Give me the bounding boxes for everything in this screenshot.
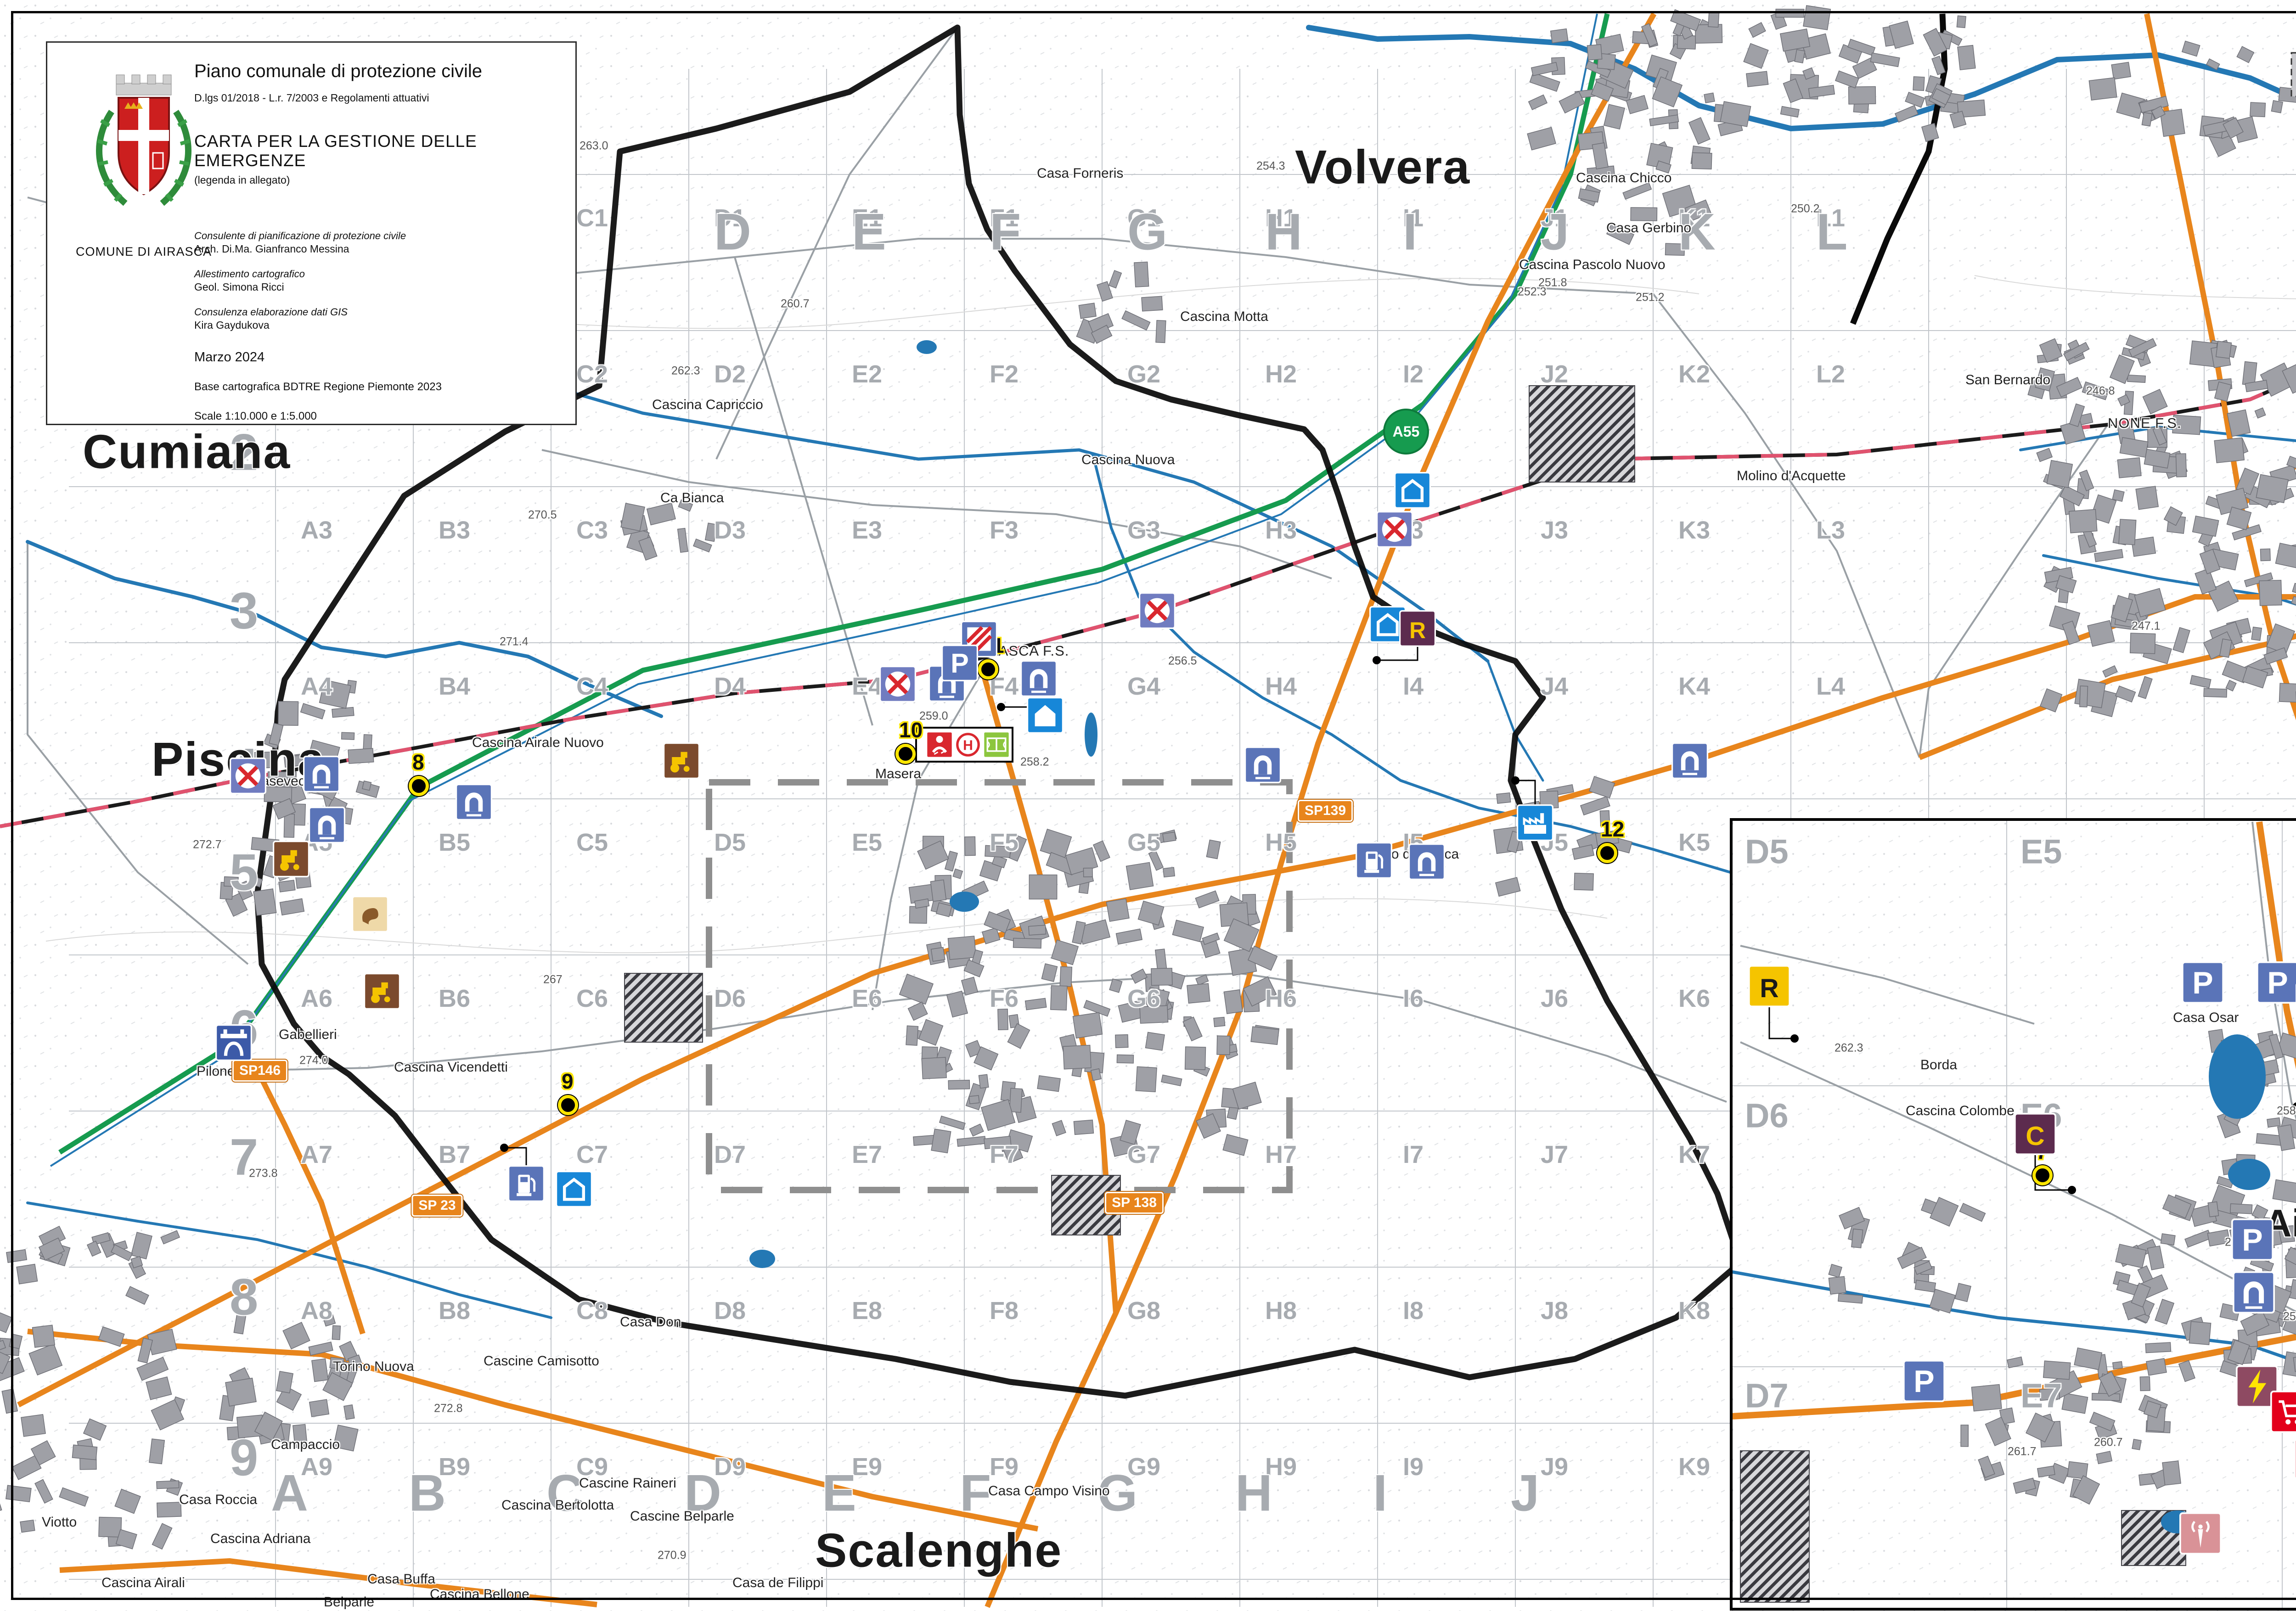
sport-icon bbox=[983, 731, 1010, 758]
grid-cell-label: E6 bbox=[852, 984, 882, 1013]
map-subtitle: (legenda in allegato) bbox=[194, 174, 562, 186]
assembly-icon bbox=[926, 731, 953, 758]
credit-name: Arch. Di.Ma. Gianfranco Messina bbox=[194, 243, 562, 255]
grid-column-letter: D bbox=[714, 202, 751, 262]
credit-role: Allestimento cartografico bbox=[194, 268, 562, 280]
place-label: Cascina Vicendetti bbox=[394, 1060, 508, 1075]
antenna-icon bbox=[2179, 1512, 2222, 1555]
parking-icon: P bbox=[2231, 1218, 2273, 1261]
house-blue-icon bbox=[556, 1171, 592, 1207]
grid-column-letter: F bbox=[990, 202, 1021, 262]
tractor-icon bbox=[663, 742, 700, 779]
tractor-icon bbox=[364, 973, 400, 1010]
inset-place-label: Casa Osar bbox=[2173, 1010, 2239, 1026]
place-label: Casa Roccia bbox=[179, 1492, 257, 1508]
road-badge: SP 138 bbox=[1105, 1192, 1164, 1214]
place-label: Casa de Filippi bbox=[732, 1575, 823, 1591]
factory-icon bbox=[1517, 804, 1553, 841]
grid-cell-label: I9 bbox=[1403, 1453, 1424, 1481]
grid-cell-label: F6 bbox=[990, 984, 1019, 1013]
map-title: CARTA PER LA GESTIONE DELLE EMERGENZE bbox=[194, 132, 562, 170]
parking-icon: P bbox=[1903, 1360, 1945, 1402]
grid-cell-label: G3 bbox=[1127, 516, 1160, 544]
waypoint-dot-8 bbox=[409, 776, 429, 796]
place-label: Casa Forneris bbox=[1037, 166, 1123, 181]
mural-crown bbox=[116, 75, 171, 95]
grid-cell-label: I2 bbox=[1403, 360, 1424, 388]
grid-column-letter: I bbox=[1403, 202, 1417, 262]
spot-height: 258.2 bbox=[1020, 756, 1049, 769]
grid-column-letter: C bbox=[546, 1464, 584, 1523]
plan-law-reference: D.lgs 01/2018 - L.r. 7/2003 e Regolament… bbox=[194, 92, 562, 104]
grid-cell-label: G7 bbox=[1127, 1140, 1160, 1169]
grid-cell-label: C8 bbox=[576, 1297, 608, 1325]
grid-cell-label: I7 bbox=[1403, 1140, 1424, 1169]
grid-cell-label: J6 bbox=[1541, 984, 1568, 1013]
grid-cell-label: G5 bbox=[1127, 828, 1160, 857]
grid-cell-label: F5 bbox=[990, 828, 1019, 857]
place-label: Ca Bianca bbox=[660, 490, 724, 506]
inset-grid-cell-label: D6 bbox=[1745, 1096, 1789, 1135]
town-label: Scalenghe bbox=[815, 1524, 1062, 1578]
c-purple-icon: C bbox=[2014, 1113, 2056, 1155]
place-label: Viotto bbox=[42, 1515, 77, 1530]
grid-row-number: 9 bbox=[230, 1428, 258, 1488]
place-label: Cascina Motta bbox=[1180, 309, 1268, 325]
spot-height: 272.8 bbox=[434, 1402, 463, 1415]
place-label: Casa Campo Visino bbox=[988, 1483, 1110, 1499]
waypoint-dot-11 bbox=[978, 659, 998, 679]
inset-spot-height: 261.7 bbox=[2008, 1445, 2037, 1459]
grid-row-number: 3 bbox=[230, 581, 258, 640]
fuel-icon bbox=[508, 1165, 545, 1202]
credit-role: Consulente di pianificazione di protezio… bbox=[194, 230, 562, 242]
grid-cell-label: K7 bbox=[1678, 1140, 1710, 1169]
house-red-icon bbox=[2294, 1438, 2296, 1480]
grid-row-number: 8 bbox=[230, 1268, 258, 1327]
svg-text:R: R bbox=[1760, 974, 1778, 1003]
crossing-x-icon bbox=[230, 758, 266, 794]
svg-text:P: P bbox=[2242, 1223, 2262, 1257]
grid-cell-label: D8 bbox=[714, 1297, 746, 1325]
grid-cell-label: F9 bbox=[990, 1453, 1019, 1481]
spot-height: 267 bbox=[543, 973, 563, 987]
grid-cell-label: L4 bbox=[1816, 672, 1845, 701]
grid-cell-label: D3 bbox=[714, 516, 746, 544]
grid-cell-label: E8 bbox=[852, 1297, 882, 1325]
grid-cell-label: D2 bbox=[714, 360, 746, 388]
grid-cell-label: A3 bbox=[301, 516, 332, 544]
highway-icon bbox=[215, 1024, 252, 1061]
inset-place-label: Cascina Colombe bbox=[1906, 1103, 2015, 1119]
credit-role: Consulenza elaborazione dati GIS bbox=[194, 306, 562, 318]
spot-height: 259.0 bbox=[919, 710, 948, 723]
place-label: Masera bbox=[875, 766, 921, 782]
place-label: Cascina Bertolotta bbox=[501, 1498, 614, 1513]
parking-icon: P bbox=[941, 645, 978, 681]
spot-height: 271.4 bbox=[500, 635, 529, 649]
grid-cell-label: E2 bbox=[852, 360, 882, 388]
grid-cell-label: H6 bbox=[1265, 984, 1297, 1013]
grid-cell-label: K3 bbox=[1678, 516, 1710, 544]
svg-text:P: P bbox=[2267, 965, 2288, 1000]
grid-cell-label: J8 bbox=[1541, 1297, 1568, 1325]
grid-column-letter: I bbox=[1373, 1464, 1387, 1523]
svg-text:P: P bbox=[951, 648, 968, 679]
grid-cell-label: H4 bbox=[1265, 672, 1297, 701]
spot-height: 254.3 bbox=[1256, 160, 1285, 173]
grid-column-letter: F bbox=[960, 1464, 991, 1523]
grid-column-letter: J bbox=[1541, 202, 1569, 262]
grid-column-letter: E bbox=[822, 1464, 856, 1523]
fuel-icon bbox=[1356, 842, 1392, 879]
grid-cell-label: G8 bbox=[1127, 1297, 1160, 1325]
grid-cell-label: B8 bbox=[439, 1297, 470, 1325]
grid-cell-label: A8 bbox=[301, 1297, 332, 1325]
place-label: Belparle bbox=[324, 1594, 374, 1610]
inset-spot-height: 260.7 bbox=[2094, 1436, 2123, 1449]
grid-cell-label: A6 bbox=[301, 984, 332, 1013]
inset-grid-cell-label: E7 bbox=[2020, 1376, 2062, 1415]
grid-cell-label: B4 bbox=[439, 672, 470, 701]
spot-height: 273.8 bbox=[249, 1167, 278, 1180]
parking-icon: P bbox=[2182, 961, 2224, 1004]
spot-height: 270.9 bbox=[658, 1549, 687, 1562]
grid-cell-label: A7 bbox=[301, 1140, 332, 1169]
grid-cell-label: K9 bbox=[1678, 1453, 1710, 1481]
r-purple-icon: R bbox=[1399, 610, 1436, 647]
place-label: Torino Nuova bbox=[333, 1359, 414, 1375]
grid-cell-label: G6 bbox=[1127, 984, 1160, 1013]
grid-cell-label: C4 bbox=[576, 672, 608, 701]
inset-grid-cell-label: E5 bbox=[2020, 832, 2062, 871]
spot-height: 274.0 bbox=[299, 1054, 328, 1067]
grid-cell-label: E3 bbox=[852, 516, 882, 544]
plan-title: Piano comunale di protezione civile bbox=[194, 61, 562, 82]
r-yellow-icon: R bbox=[1748, 965, 1790, 1007]
grid-cell-label: L3 bbox=[1816, 516, 1845, 544]
spot-height: 262.3 bbox=[671, 365, 700, 378]
place-label: Cascina Airali bbox=[101, 1575, 185, 1591]
place-label: Cascine Camisotto bbox=[484, 1353, 599, 1369]
grid-cell-label: K5 bbox=[1678, 828, 1710, 857]
grid-cell-label: C2 bbox=[576, 360, 608, 388]
spot-height: 251.2 bbox=[1636, 291, 1665, 304]
coat-of-arms bbox=[84, 70, 203, 222]
spot-height: 263.0 bbox=[580, 140, 608, 153]
grid-cell-label: B3 bbox=[439, 516, 470, 544]
grid-cell-label: J7 bbox=[1541, 1140, 1568, 1169]
grid-cell-label: K8 bbox=[1678, 1297, 1710, 1325]
svg-text:P: P bbox=[2192, 965, 2213, 1000]
grid-cell-label: B7 bbox=[439, 1140, 470, 1169]
grid-column-letter: B bbox=[409, 1464, 446, 1523]
place-label: Cascine Raineri bbox=[579, 1476, 676, 1491]
spot-height: 270.5 bbox=[528, 509, 557, 522]
waypoint-number: 9 bbox=[562, 1069, 574, 1094]
inset-grid-cell-label: D5 bbox=[1745, 832, 1789, 871]
grid-cell-label: J3 bbox=[1541, 516, 1568, 544]
tractor-icon bbox=[273, 841, 310, 877]
grid-cell-label: G4 bbox=[1127, 672, 1160, 701]
grid-cell-label: J9 bbox=[1541, 1453, 1568, 1481]
tunnel-icon bbox=[309, 807, 345, 843]
town-label: Volvera bbox=[1295, 140, 1470, 195]
grid-cell-label: C3 bbox=[576, 516, 608, 544]
motorway-badge: A55 bbox=[1383, 409, 1429, 455]
grid-cell-label: F7 bbox=[990, 1140, 1019, 1169]
spot-height: 251.8 bbox=[1538, 276, 1567, 290]
shield bbox=[118, 98, 169, 194]
place-label: Campaccio bbox=[271, 1437, 340, 1453]
grid-cell-label: J2 bbox=[1541, 360, 1568, 388]
tunnel-icon bbox=[1020, 660, 1057, 697]
grid-column-letter: J bbox=[1511, 1464, 1539, 1523]
crossing-x-icon bbox=[879, 666, 916, 702]
road-badge: SP 23 bbox=[411, 1195, 462, 1217]
credit-name: Kira Gaydukova bbox=[194, 319, 562, 331]
grid-cell-label: H7 bbox=[1265, 1140, 1297, 1169]
house-blue-filled-icon bbox=[1027, 697, 1064, 734]
grid-cell-label: A4 bbox=[301, 672, 332, 701]
tunnel-icon bbox=[456, 784, 492, 820]
spot-height: 250.2 bbox=[1791, 202, 1820, 216]
base-cartography: Base cartografica BDTRE Regione Piemonte… bbox=[194, 381, 562, 393]
spot-height: 272.7 bbox=[193, 838, 222, 852]
grid-column-letter: H bbox=[1265, 202, 1302, 262]
grid-column-letter: H bbox=[1235, 1464, 1272, 1523]
map-scales: Scale 1:10.000 e 1:5.000 bbox=[194, 410, 562, 423]
waypoint-dot-9 bbox=[558, 1095, 578, 1115]
grid-cell-label: I8 bbox=[1403, 1297, 1424, 1325]
grid-column-letter: A bbox=[271, 1464, 308, 1523]
grid-cell-label: K4 bbox=[1678, 672, 1710, 701]
grid-row-number: 5 bbox=[230, 843, 258, 902]
svg-text:C: C bbox=[2026, 1122, 2044, 1151]
map-date: Marzo 2024 bbox=[194, 350, 562, 365]
svg-text:R: R bbox=[1409, 617, 1426, 643]
helipad-icon: H bbox=[955, 731, 981, 758]
grid-cell-label: H8 bbox=[1265, 1297, 1297, 1325]
spot-height: 256.5 bbox=[1168, 655, 1197, 668]
grid-cell-label: K2 bbox=[1678, 360, 1710, 388]
place-label: Cascina Nuova bbox=[1081, 452, 1175, 468]
waypoint-dot-10 bbox=[895, 744, 916, 764]
credit-name: Geol. Simona Ricci bbox=[194, 281, 562, 293]
tunnel-icon bbox=[303, 756, 340, 792]
svg-text:P: P bbox=[1913, 1364, 1934, 1399]
road-badge: SP139 bbox=[1298, 800, 1353, 822]
town-label: Cumiana bbox=[83, 425, 291, 480]
waypoint-dot-7 bbox=[2032, 1165, 2053, 1185]
grid-cell-label: H3 bbox=[1265, 516, 1297, 544]
grid-cell-label: J4 bbox=[1541, 672, 1568, 701]
place-label: Molino d'Acquette bbox=[1737, 468, 1846, 484]
grid-cell-label: D7 bbox=[714, 1140, 746, 1169]
grid-cell-label: H2 bbox=[1265, 360, 1297, 388]
tunnel-icon bbox=[2233, 1271, 2275, 1313]
cart-icon bbox=[2270, 1391, 2296, 1433]
waypoint-number: 10 bbox=[899, 718, 923, 742]
place-label: Cascina Adriana bbox=[210, 1531, 310, 1547]
spot-height: 260.7 bbox=[781, 298, 810, 311]
grid-cell-label: D5 bbox=[714, 828, 746, 857]
place-label: Casa Gerbino bbox=[1606, 220, 1691, 236]
grid-cell-label: E5 bbox=[852, 828, 882, 857]
grid-cell-label: B6 bbox=[439, 984, 470, 1013]
crossing-x-icon bbox=[1376, 511, 1413, 548]
waypoint-number: 12 bbox=[1601, 817, 1624, 842]
place-label: Cascine Belparle bbox=[630, 1509, 734, 1524]
place-label: Cascina Capriccio bbox=[652, 397, 763, 413]
grid-cell-label: F8 bbox=[990, 1297, 1019, 1325]
spot-height: 247.1 bbox=[2132, 620, 2161, 633]
grid-cell-label: G2 bbox=[1127, 360, 1160, 388]
spot-height: 246.8 bbox=[2086, 385, 2115, 398]
inset-spot-height: 258.1 bbox=[2283, 1310, 2296, 1324]
place-label: Cascina Chicco bbox=[1576, 170, 1671, 186]
grid-cell-label: D4 bbox=[714, 672, 746, 701]
livestock-icon bbox=[352, 896, 388, 932]
crossing-x-icon bbox=[1139, 592, 1176, 629]
grid-cell-label: K6 bbox=[1678, 984, 1710, 1013]
grid-cell-label: F3 bbox=[990, 516, 1019, 544]
grid-cell-label: I4 bbox=[1403, 672, 1424, 701]
grid-column-letter: E bbox=[852, 202, 886, 262]
grid-cell-label: F2 bbox=[990, 360, 1019, 388]
place-label: Casa Don bbox=[620, 1314, 681, 1330]
inset-grid-cell-label: D7 bbox=[1745, 1376, 1789, 1415]
grid-column-letter: G bbox=[1127, 202, 1167, 262]
map-sheet: A3A4A5A6A7A8A9B3B4B5B6B7B8B9C1C2C3C4C5C6… bbox=[0, 0, 2296, 1611]
tunnel-icon bbox=[1671, 742, 1708, 779]
grid-cell-label: C5 bbox=[576, 828, 608, 857]
place-label: Cascina Pascolo Nuovo bbox=[1519, 257, 1666, 273]
parking-icon: P bbox=[2257, 961, 2296, 1004]
grid-cell-label: E4 bbox=[852, 672, 882, 701]
place-label: Casa Buffa bbox=[367, 1572, 435, 1587]
place-label: Gabellieri bbox=[279, 1027, 337, 1043]
house-blue-icon bbox=[1394, 472, 1431, 509]
grid-cell-label: H5 bbox=[1265, 828, 1297, 857]
waypoint-number: 8 bbox=[412, 750, 424, 775]
inset-spot-height: 258.4 bbox=[2277, 1105, 2296, 1118]
grid-cell-label: D6 bbox=[714, 984, 746, 1013]
tunnel-icon bbox=[1408, 843, 1445, 880]
place-label: Cascina Bellone bbox=[430, 1587, 529, 1602]
grid-cell-label: E7 bbox=[852, 1140, 882, 1169]
grid-cell-label: C6 bbox=[576, 984, 608, 1013]
tunnel-icon bbox=[1244, 747, 1281, 783]
place-label: Cascina Airale Nuovo bbox=[472, 735, 604, 751]
title-block: COMUNE DI AIRASCA Piano comunale di prot… bbox=[46, 41, 577, 425]
grid-column-letter: L bbox=[1816, 202, 1847, 262]
road-badge: SP146 bbox=[232, 1060, 287, 1082]
grid-cell-label: B5 bbox=[439, 828, 470, 857]
inset-spot-height: 262.3 bbox=[1835, 1042, 1863, 1055]
svg-text:H: H bbox=[963, 738, 973, 753]
inset-place-label: Borda bbox=[1920, 1057, 1957, 1073]
grid-cell-label: I6 bbox=[1403, 984, 1424, 1013]
grid-cell-label: L2 bbox=[1816, 360, 1845, 388]
grid-cell-label: C7 bbox=[576, 1140, 608, 1169]
railway-station-label: NONE F.S. bbox=[2108, 415, 2182, 432]
grid-cell-label: C1 bbox=[576, 204, 608, 232]
waypoint-dot-12 bbox=[1597, 843, 1617, 863]
place-label: San Bernardo bbox=[1965, 372, 2050, 388]
